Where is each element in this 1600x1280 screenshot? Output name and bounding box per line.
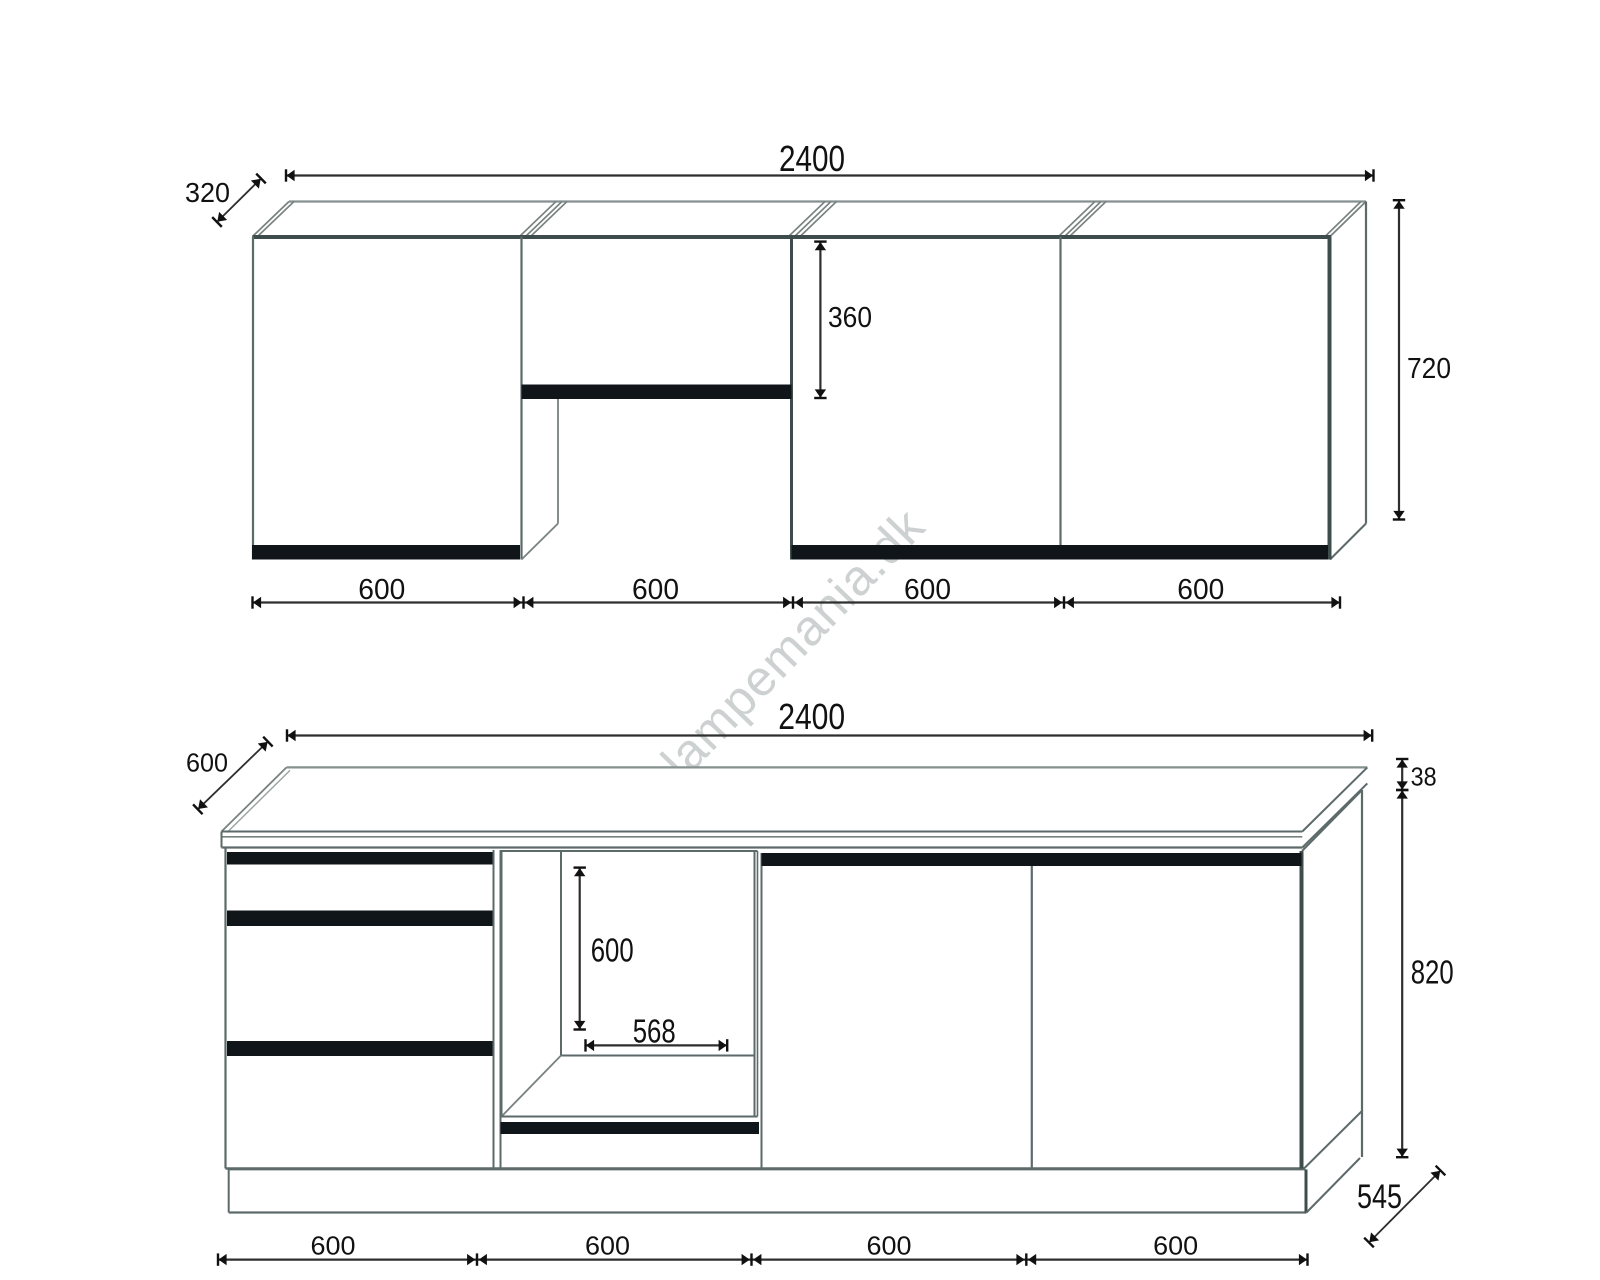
svg-text:820: 820 <box>1411 954 1454 991</box>
svg-text:568: 568 <box>633 1013 676 1050</box>
svg-text:720: 720 <box>1407 353 1451 385</box>
svg-text:600: 600 <box>311 1231 356 1261</box>
svg-text:600: 600 <box>186 748 228 778</box>
svg-text:2400: 2400 <box>779 138 845 179</box>
svg-text:600: 600 <box>1177 574 1224 606</box>
svg-text:600: 600 <box>632 574 679 606</box>
svg-text:360: 360 <box>828 302 872 334</box>
svg-text:2400: 2400 <box>778 696 845 737</box>
svg-text:600: 600 <box>591 932 634 969</box>
svg-text:320: 320 <box>185 177 230 208</box>
svg-text:600: 600 <box>867 1231 912 1261</box>
svg-text:38: 38 <box>1411 762 1437 792</box>
svg-text:600: 600 <box>358 574 405 606</box>
svg-text:545: 545 <box>1357 1178 1402 1216</box>
svg-text:600: 600 <box>585 1231 630 1261</box>
svg-text:600: 600 <box>904 574 951 606</box>
svg-text:600: 600 <box>1153 1231 1198 1261</box>
